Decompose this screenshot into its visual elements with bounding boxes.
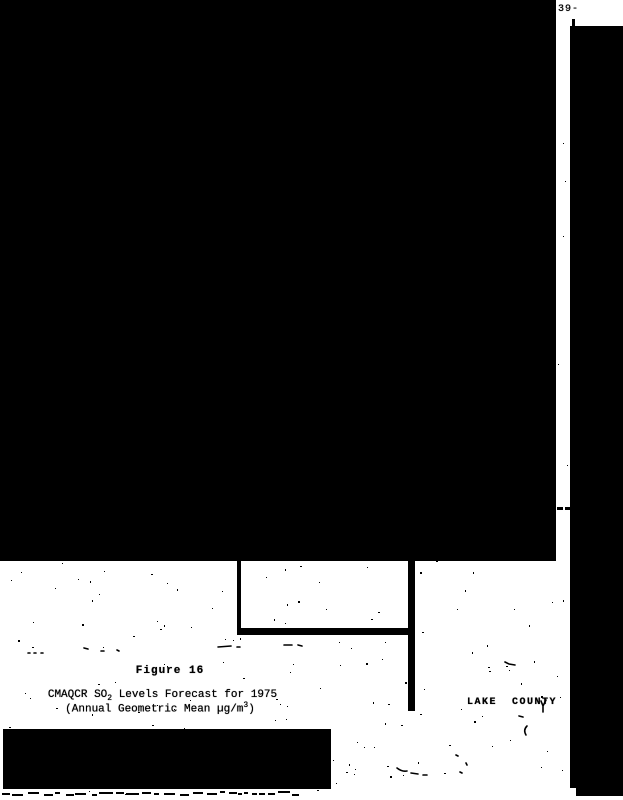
tick-mark bbox=[519, 716, 523, 717]
scanned-document-page: -39- Figure 16 CMAQCR SO2 Levels Forecas… bbox=[0, 0, 623, 800]
dash-cluster-right bbox=[284, 645, 302, 646]
speck-cluster bbox=[456, 755, 467, 773]
dash-cluster-left bbox=[218, 646, 240, 647]
wishbone-mark bbox=[541, 700, 546, 712]
brace-mark bbox=[525, 726, 527, 735]
wavy-dash-mark bbox=[397, 768, 427, 775]
speck-dashes bbox=[84, 648, 119, 651]
corner-mark bbox=[505, 662, 515, 665]
scan-artifact-strokes bbox=[0, 0, 623, 800]
